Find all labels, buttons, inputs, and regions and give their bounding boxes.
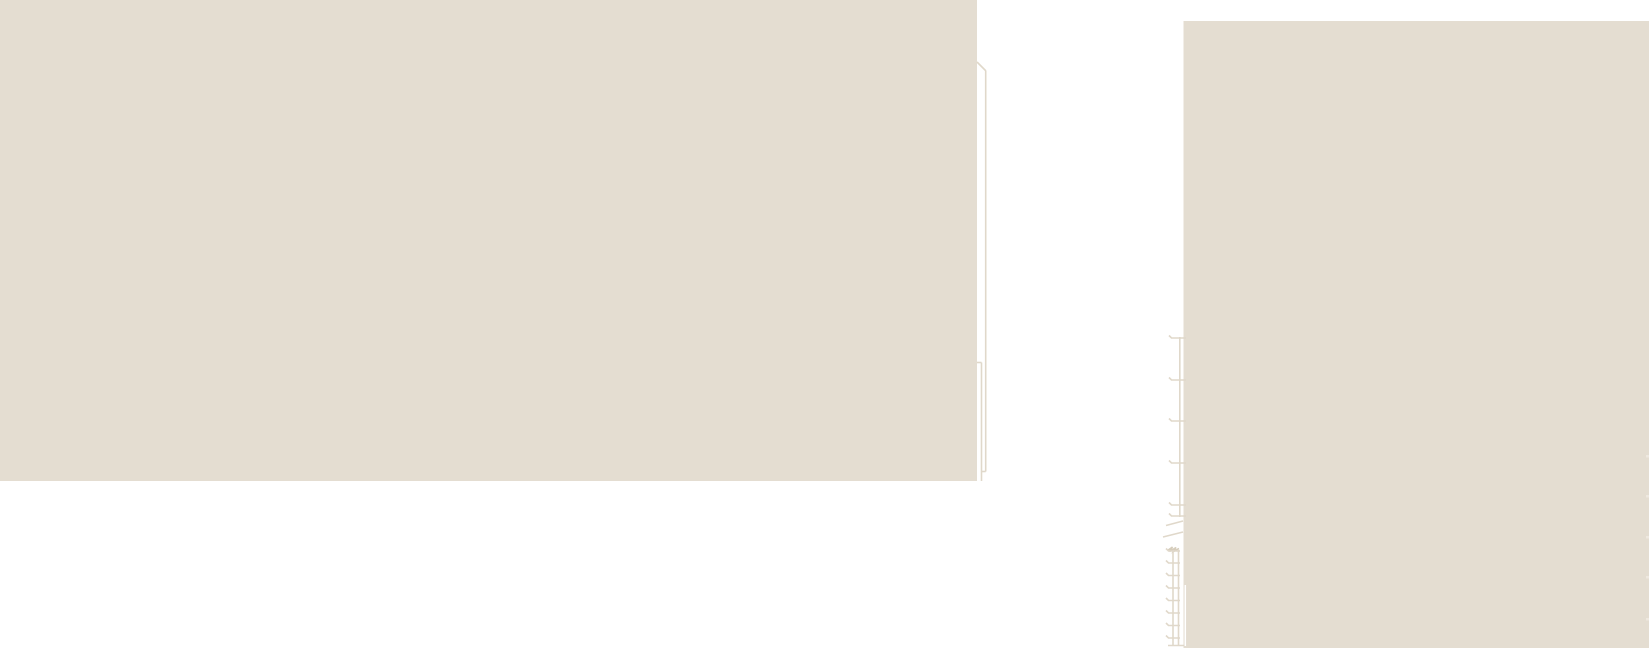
left-building-mass [0, 0, 977, 481]
right-building-mass [1184, 21, 1649, 648]
tick-mark [1169, 378, 1186, 381]
left-wall-diagonal-line [977, 62, 986, 71]
break-diagonal-upper [1166, 521, 1183, 526]
ladder [1166, 549, 1180, 646]
architectural-drawing [0, 0, 1649, 648]
drawing-canvas [0, 0, 1649, 648]
stair-tick-line [1169, 336, 1186, 518]
tick-mark [1169, 503, 1186, 506]
tick-mark [1169, 419, 1186, 422]
tick-mark [1169, 514, 1186, 517]
tick-mark [1169, 461, 1186, 464]
tick-mark [1169, 336, 1186, 339]
break-diagonal-lower [1163, 532, 1183, 537]
